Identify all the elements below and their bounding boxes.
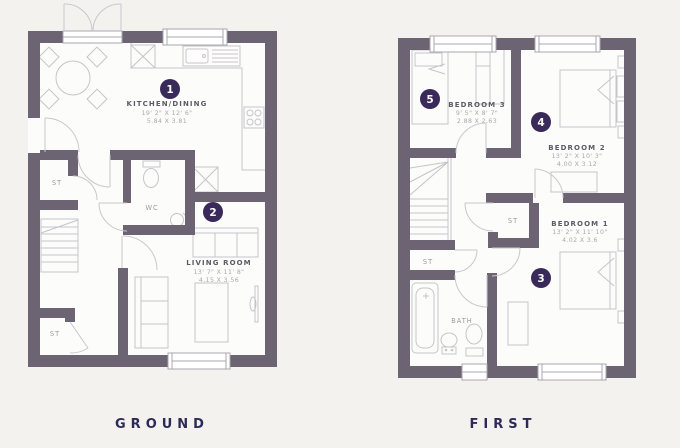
svg-text:1: 1 xyxy=(166,84,173,96)
sink-icon xyxy=(183,46,240,66)
room-name-living-room: LIVING ROOM xyxy=(186,259,252,267)
room-name-kitchen-dining: KITCHEN/DINING xyxy=(127,100,208,108)
room-dims-imperial: 9' 5" X 8' 7" xyxy=(456,110,498,117)
room-name-wc: WC xyxy=(145,204,158,212)
room-dims-imperial: 13' 2" X 10' 3" xyxy=(552,153,603,160)
svg-text:3: 3 xyxy=(537,273,544,285)
room-name-bedroom3: BEDROOM 3 xyxy=(448,101,505,109)
room-dims-imperial: 13' 7" X 11' 8" xyxy=(194,269,245,276)
first-floor-plan: BEDROOM 3 9' 5" X 8' 7" 2.88 X 2.63 BEDR… xyxy=(398,36,636,380)
room-name-bedroom2: BEDROOM 2 xyxy=(548,144,605,152)
room-name-storage: ST xyxy=(423,258,433,266)
ground-floor-caption: GROUND xyxy=(115,417,209,432)
room-name-bedroom1: BEDROOM 1 xyxy=(551,220,608,228)
marker-2: 2 xyxy=(203,202,223,222)
room-dims-metric: 2.88 X 2.63 xyxy=(457,118,497,125)
room-dims-metric: 4.02 X 3.6 xyxy=(562,237,598,244)
floorplan-canvas: KITCHEN/DINING 19' 2" X 12' 6" 5.84 X 3.… xyxy=(0,0,680,448)
marker-5: 5 xyxy=(420,89,440,109)
room-dims-imperial: 13' 2" X 11' 10" xyxy=(552,229,607,236)
svg-text:2: 2 xyxy=(209,207,216,219)
room-dims-metric: 4.15 X 3.56 xyxy=(199,277,239,284)
first-floor-caption: FIRST xyxy=(470,417,537,432)
room-name-storage: ST xyxy=(508,217,518,225)
marker-1: 1 xyxy=(160,79,180,99)
room-name-storage: ST xyxy=(52,179,62,187)
room-name-storage: ST xyxy=(50,330,60,338)
marker-4: 4 xyxy=(531,112,551,132)
room-dims-imperial: 19' 2" X 12' 6" xyxy=(142,110,193,117)
svg-text:5: 5 xyxy=(426,94,433,106)
svg-text:4: 4 xyxy=(537,117,544,129)
ground-floor-plan: KITCHEN/DINING 19' 2" X 12' 6" 5.84 X 3.… xyxy=(28,4,277,369)
french-doors-icon xyxy=(64,4,121,31)
marker-3: 3 xyxy=(531,268,551,288)
room-name-bath: BATH xyxy=(451,317,473,325)
room-dims-metric: 4.00 X 3.12 xyxy=(557,161,597,168)
room-dims-metric: 5.84 X 3.81 xyxy=(147,118,187,125)
